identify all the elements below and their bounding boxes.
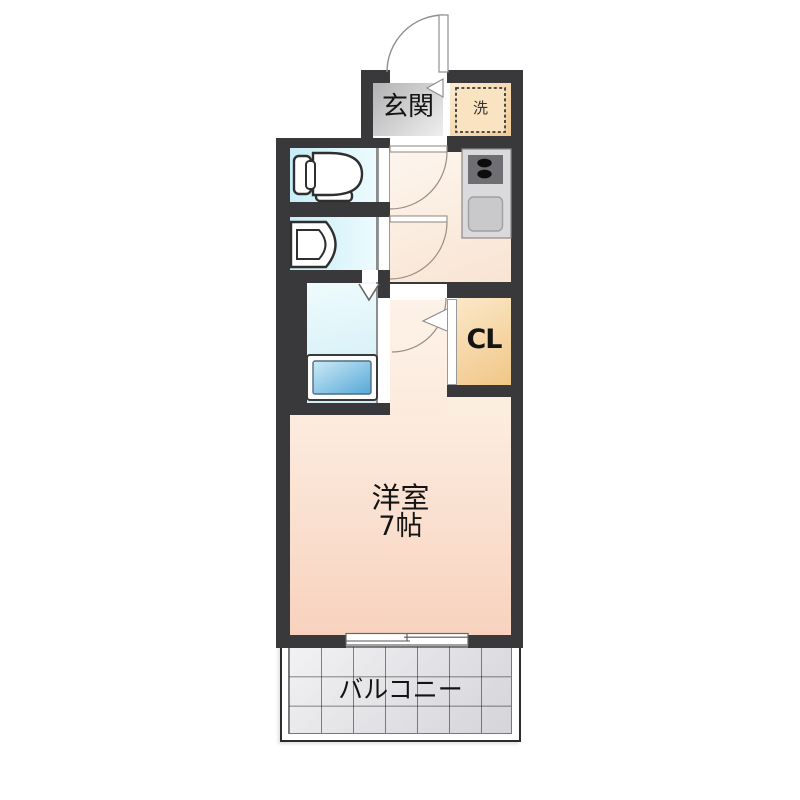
balcony-label: バルコニー [280, 677, 521, 703]
room-main-under-closet [447, 397, 511, 415]
toilet-door-panel [378, 148, 390, 202]
wall [276, 403, 390, 415]
room-main-vestibule [390, 298, 447, 415]
closet-label: CL [457, 326, 511, 354]
laundry-label: 洗 [456, 101, 505, 117]
wall [447, 136, 511, 152]
main-room-size-label: 7帖 [290, 513, 511, 541]
room-bathroom [307, 282, 378, 403]
genkan-label: 玄関 [373, 94, 443, 121]
wall [361, 70, 373, 138]
wall [276, 138, 390, 148]
wall [276, 415, 290, 648]
washbasin-door-panel [378, 217, 390, 270]
room-kitchen-hall [390, 150, 511, 298]
wall [468, 635, 523, 648]
wall [511, 70, 523, 648]
main-room-label: 洋室 [290, 483, 511, 513]
wall [276, 282, 307, 415]
floor-plan: 玄関 洗 CL 洋室 7帖 バルコニー [0, 0, 800, 800]
closet-door-panel [447, 299, 457, 385]
room-toilet [290, 148, 378, 202]
wall [276, 635, 346, 648]
wall [276, 202, 390, 217]
wall [447, 385, 511, 397]
main-room-door-opening [390, 284, 447, 300]
room-washbasin [290, 217, 378, 270]
